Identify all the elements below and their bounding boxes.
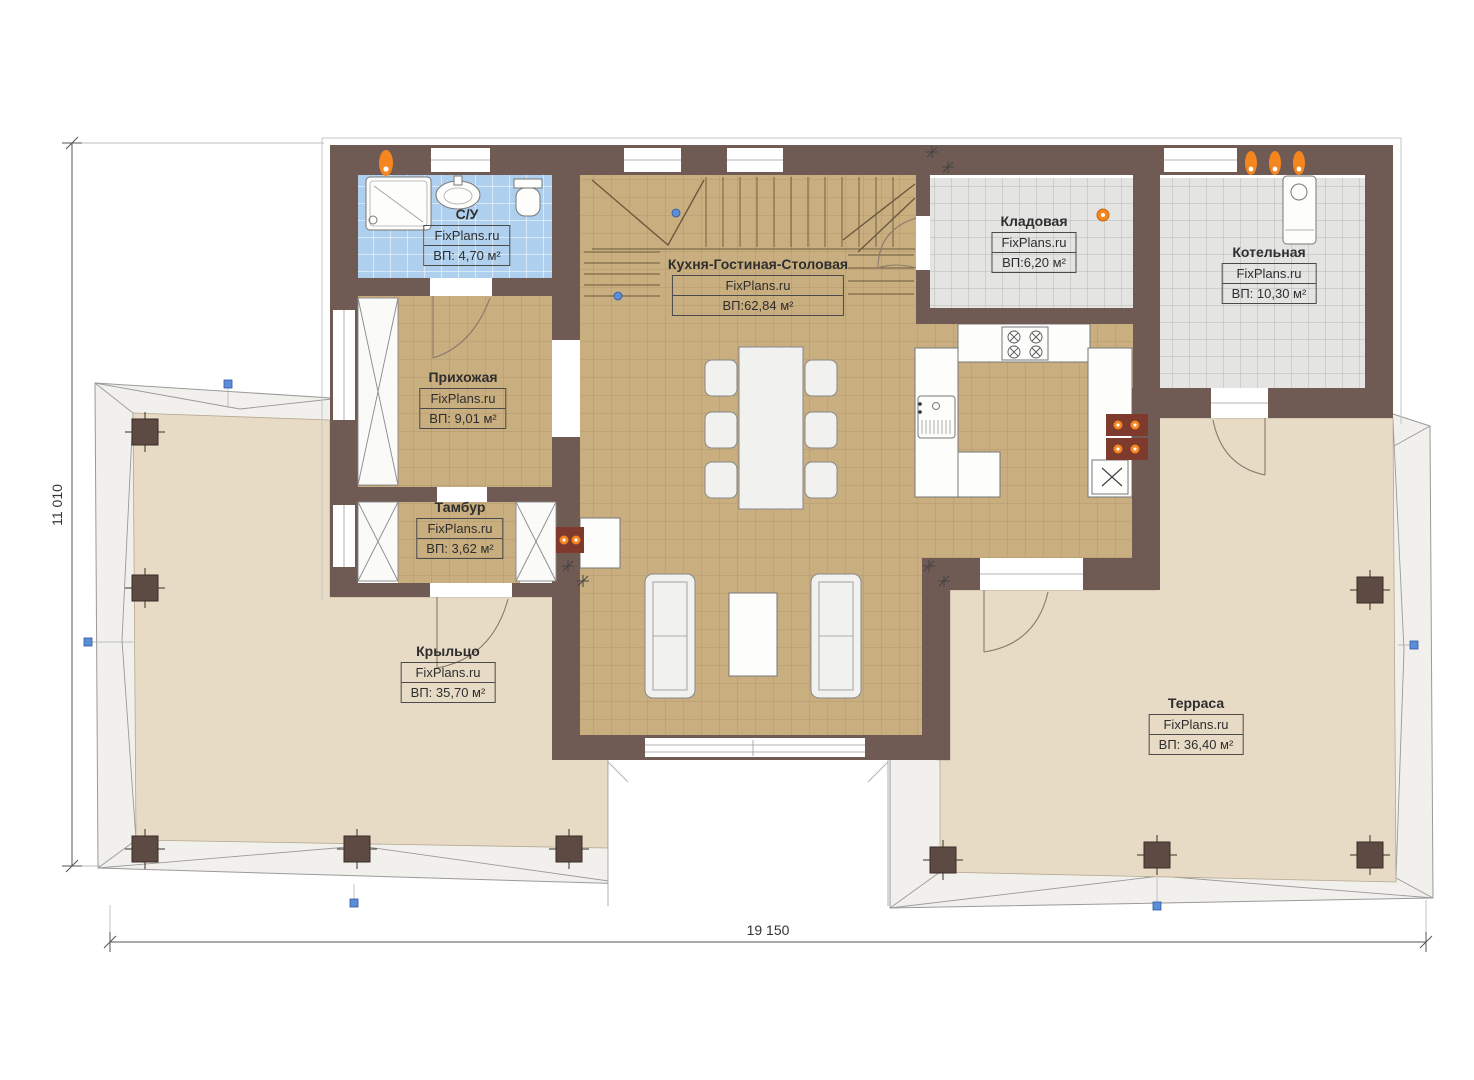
dimension-width: 19 150 <box>747 922 790 938</box>
toilet-icon <box>514 179 542 216</box>
walkway <box>608 760 888 906</box>
room-label-kitchen-living: Кухня-Гостиная-Столовая FixPlans.ru ВП:6… <box>668 256 848 316</box>
brand-link: FixPlans.ru <box>1150 715 1243 734</box>
room-area: ВП:62,84 м² <box>673 295 843 315</box>
room-name: Тамбур <box>416 499 503 515</box>
kitchen-sink-icon <box>918 396 955 438</box>
room-label-bathroom: С/У FixPlans.ru ВП: 4,70 м² <box>423 206 510 266</box>
brand-link: FixPlans.ru <box>402 663 495 682</box>
floor-plan-drawing <box>0 0 1474 1080</box>
room-area: ВП: 3,62 м² <box>417 538 502 558</box>
floor-plan-canvas: С/У FixPlans.ru ВП: 4,70 м² Прихожая Fix… <box>0 0 1474 1080</box>
room-name: Прихожая <box>419 369 506 385</box>
brand-link: FixPlans.ru <box>420 389 505 408</box>
brand-link: FixPlans.ru <box>673 276 843 295</box>
dimension-height: 11 010 <box>49 484 65 526</box>
room-area: ВП: 9,01 м² <box>420 408 505 428</box>
room-area: ВП:6,20 м² <box>992 252 1075 272</box>
dishwasher-icon <box>1092 460 1128 494</box>
brand-link: FixPlans.ru <box>992 233 1075 252</box>
room-name: Кухня-Гостиная-Столовая <box>668 256 848 272</box>
room-name: Котельная <box>1222 244 1317 260</box>
radiator-icon <box>556 527 584 553</box>
room-label-storage: Кладовая FixPlans.ru ВП:6,20 м² <box>991 213 1076 273</box>
shower-icon <box>366 177 431 230</box>
room-name: С/У <box>423 206 510 222</box>
room-label-boiler-room: Котельная FixPlans.ru ВП: 10,30 м² <box>1222 244 1317 304</box>
room-name: Крыльцо <box>401 643 496 659</box>
coffee-table-icon <box>729 593 777 676</box>
brand-link: FixPlans.ru <box>1223 264 1316 283</box>
room-label-vestibule: Тамбур FixPlans.ru ВП: 3,62 м² <box>416 499 503 559</box>
room-name: Терраса <box>1149 695 1244 711</box>
room-label-hallway: Прихожая FixPlans.ru ВП: 9,01 м² <box>419 369 506 429</box>
dining-table-icon <box>739 347 803 509</box>
room-area: ВП: 36,40 м² <box>1150 734 1243 754</box>
room-area: ВП: 10,30 м² <box>1223 283 1316 303</box>
room-label-terrace: Терраса FixPlans.ru ВП: 36,40 м² <box>1149 695 1244 755</box>
sofa-icon <box>645 574 695 698</box>
cabinet-icon <box>580 518 620 568</box>
room-area: ВП: 4,70 м² <box>424 245 509 265</box>
stove-icon <box>1002 327 1048 360</box>
brand-link: FixPlans.ru <box>424 226 509 245</box>
room-area: ВП: 35,70 м² <box>402 682 495 702</box>
room-label-porch: Крыльцо FixPlans.ru ВП: 35,70 м² <box>401 643 496 703</box>
room-name: Кладовая <box>991 213 1076 229</box>
boiler-icon <box>1283 176 1316 244</box>
sofa-icon <box>811 574 861 698</box>
brand-link: FixPlans.ru <box>417 519 502 538</box>
ceiling-lamp-icon <box>1097 209 1109 221</box>
